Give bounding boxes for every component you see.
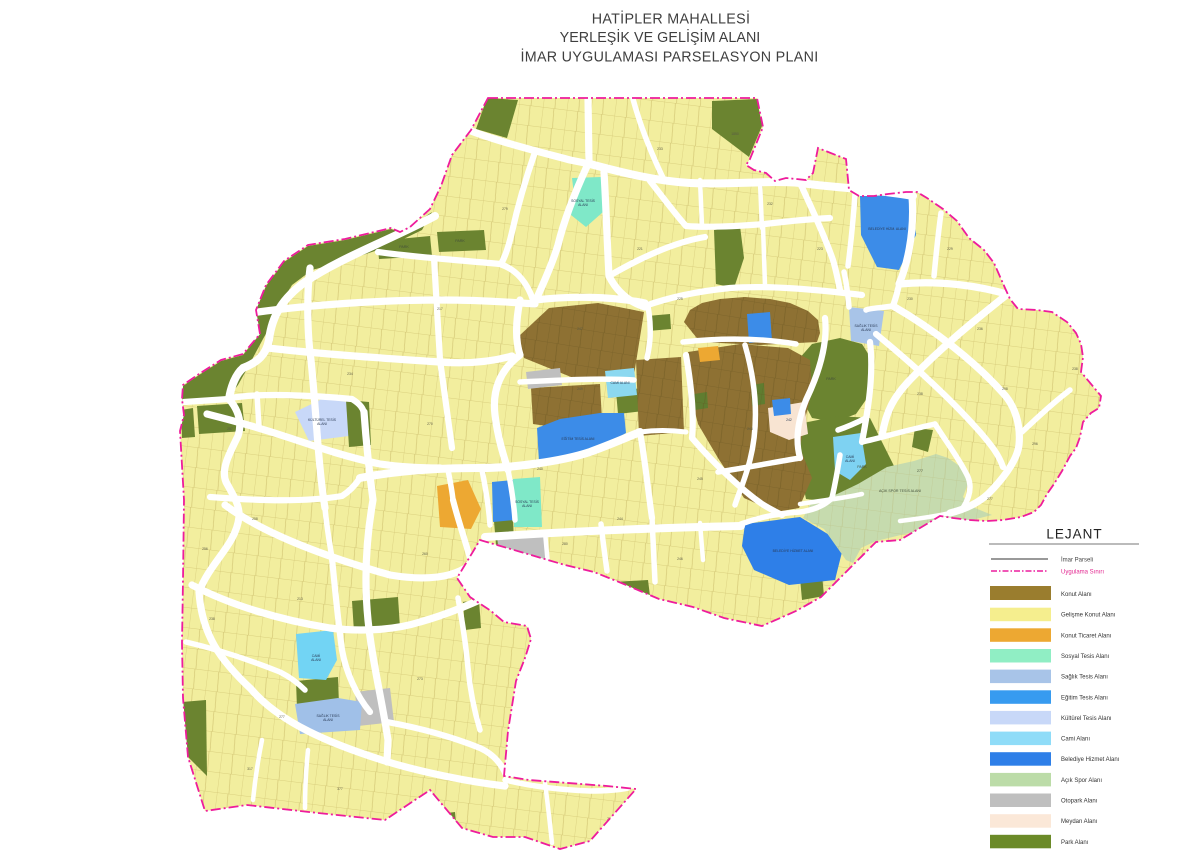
svg-text:Uygulama Sınırı: Uygulama Sınırı bbox=[1061, 570, 1104, 576]
svg-text:BELEDİYE HİZMET ALANI: BELEDİYE HİZMET ALANI bbox=[773, 548, 814, 553]
svg-text:ALANI: ALANI bbox=[323, 718, 333, 722]
svg-text:Kültürel Tesis Alanı: Kültürel Tesis Alanı bbox=[1061, 716, 1112, 722]
svg-text:258: 258 bbox=[252, 517, 258, 521]
svg-text:217: 217 bbox=[437, 307, 443, 311]
svg-text:256: 256 bbox=[202, 547, 208, 551]
svg-text:277: 277 bbox=[987, 497, 993, 501]
svg-text:Meydan Alanı: Meydan Alanı bbox=[1061, 819, 1098, 825]
svg-text:Sosyal Tesis Alanı: Sosyal Tesis Alanı bbox=[1061, 654, 1110, 660]
svg-text:İMAR UYGULAMASI PARSELASYON PL: İMAR UYGULAMASI PARSELASYON PLANI bbox=[520, 48, 818, 66]
svg-text:PARK: PARK bbox=[455, 239, 465, 243]
svg-text:CAMİ ALANI: CAMİ ALANI bbox=[610, 380, 629, 385]
svg-text:277: 277 bbox=[279, 715, 285, 719]
svg-text:ALANI: ALANI bbox=[861, 328, 871, 332]
svg-text:ALANI: ALANI bbox=[845, 459, 855, 463]
svg-text:214: 214 bbox=[517, 697, 523, 701]
svg-text:296: 296 bbox=[1032, 442, 1038, 446]
svg-text:248: 248 bbox=[617, 612, 623, 616]
svg-text:Gelişme Konut Alanı: Gelişme Konut Alanı bbox=[1061, 613, 1116, 619]
svg-text:Konut Alanı: Konut Alanı bbox=[1061, 592, 1092, 598]
svg-text:ALANI: ALANI bbox=[578, 203, 588, 207]
svg-text:Park Alanı: Park Alanı bbox=[1061, 840, 1089, 846]
svg-text:Eğitim Tesis Alanı: Eğitim Tesis Alanı bbox=[1061, 695, 1108, 701]
svg-text:EĞİTİM TESİS ALANI: EĞİTİM TESİS ALANI bbox=[562, 436, 595, 441]
svg-text:LEJANT: LEJANT bbox=[1046, 527, 1102, 542]
svg-text:280: 280 bbox=[562, 542, 568, 546]
svg-text:238: 238 bbox=[1072, 367, 1078, 371]
svg-text:247: 247 bbox=[577, 327, 583, 331]
svg-text:ALANI: ALANI bbox=[317, 422, 327, 426]
svg-text:257: 257 bbox=[227, 427, 233, 431]
svg-text:PARK: PARK bbox=[826, 377, 836, 381]
svg-text:PARK: PARK bbox=[399, 245, 409, 249]
svg-text:245: 245 bbox=[697, 477, 703, 481]
svg-text:ALANI: ALANI bbox=[522, 504, 532, 508]
svg-text:HATİPLER MAHALLESİ: HATİPLER MAHALLESİ bbox=[592, 10, 750, 28]
svg-text:377: 377 bbox=[337, 787, 343, 791]
svg-text:1850: 1850 bbox=[731, 132, 739, 136]
svg-text:223: 223 bbox=[817, 247, 823, 251]
svg-text:279: 279 bbox=[502, 207, 508, 211]
svg-text:PARK: PARK bbox=[857, 465, 867, 469]
svg-text:225: 225 bbox=[677, 297, 683, 301]
svg-text:Sağlık Tesis Alanı: Sağlık Tesis Alanı bbox=[1061, 675, 1108, 681]
svg-text:246: 246 bbox=[677, 557, 683, 561]
svg-text:260: 260 bbox=[422, 552, 428, 556]
svg-text:270: 270 bbox=[427, 422, 433, 426]
svg-text:243: 243 bbox=[747, 427, 753, 431]
svg-text:213: 213 bbox=[297, 597, 303, 601]
svg-text:277: 277 bbox=[917, 469, 923, 473]
svg-text:242: 242 bbox=[786, 418, 792, 422]
svg-text:Cami Alanı: Cami Alanı bbox=[1061, 737, 1090, 743]
svg-text:238: 238 bbox=[209, 617, 215, 621]
svg-text:249: 249 bbox=[577, 387, 583, 391]
svg-text:238: 238 bbox=[917, 392, 923, 396]
svg-text:YERLEŞİK VE GELİŞİM ALANI: YERLEŞİK VE GELİŞİM ALANI bbox=[560, 28, 761, 46]
svg-text:298: 298 bbox=[1002, 387, 1008, 391]
svg-text:İmar Parseli: İmar Parseli bbox=[1061, 557, 1093, 564]
svg-text:233: 233 bbox=[657, 147, 663, 151]
svg-text:226: 226 bbox=[852, 152, 858, 156]
svg-text:244: 244 bbox=[617, 517, 623, 521]
svg-text:229: 229 bbox=[947, 247, 953, 251]
svg-text:236: 236 bbox=[977, 327, 983, 331]
svg-text:317: 317 bbox=[247, 767, 253, 771]
svg-text:AÇIK SPOR TESİS ALANI: AÇIK SPOR TESİS ALANI bbox=[879, 488, 921, 493]
svg-text:Açık Spor Alanı: Açık Spor Alanı bbox=[1061, 778, 1102, 784]
svg-text:278: 278 bbox=[582, 772, 588, 776]
svg-text:Konut Ticaret Alanı: Konut Ticaret Alanı bbox=[1061, 633, 1112, 639]
svg-text:Otopark Alanı: Otopark Alanı bbox=[1061, 799, 1098, 805]
svg-text:ALANI: ALANI bbox=[311, 658, 321, 662]
svg-text:230: 230 bbox=[907, 297, 913, 301]
svg-text:265: 265 bbox=[557, 637, 563, 641]
svg-text:240: 240 bbox=[537, 467, 543, 471]
svg-text:234: 234 bbox=[347, 372, 353, 376]
svg-text:273: 273 bbox=[417, 677, 423, 681]
svg-text:221: 221 bbox=[637, 247, 643, 251]
svg-text:Belediye Hizmet Alanı: Belediye Hizmet Alanı bbox=[1061, 757, 1120, 763]
svg-text:232: 232 bbox=[767, 202, 773, 206]
svg-text:BELEDİYE HİZM. ALANI: BELEDİYE HİZM. ALANI bbox=[868, 226, 905, 231]
